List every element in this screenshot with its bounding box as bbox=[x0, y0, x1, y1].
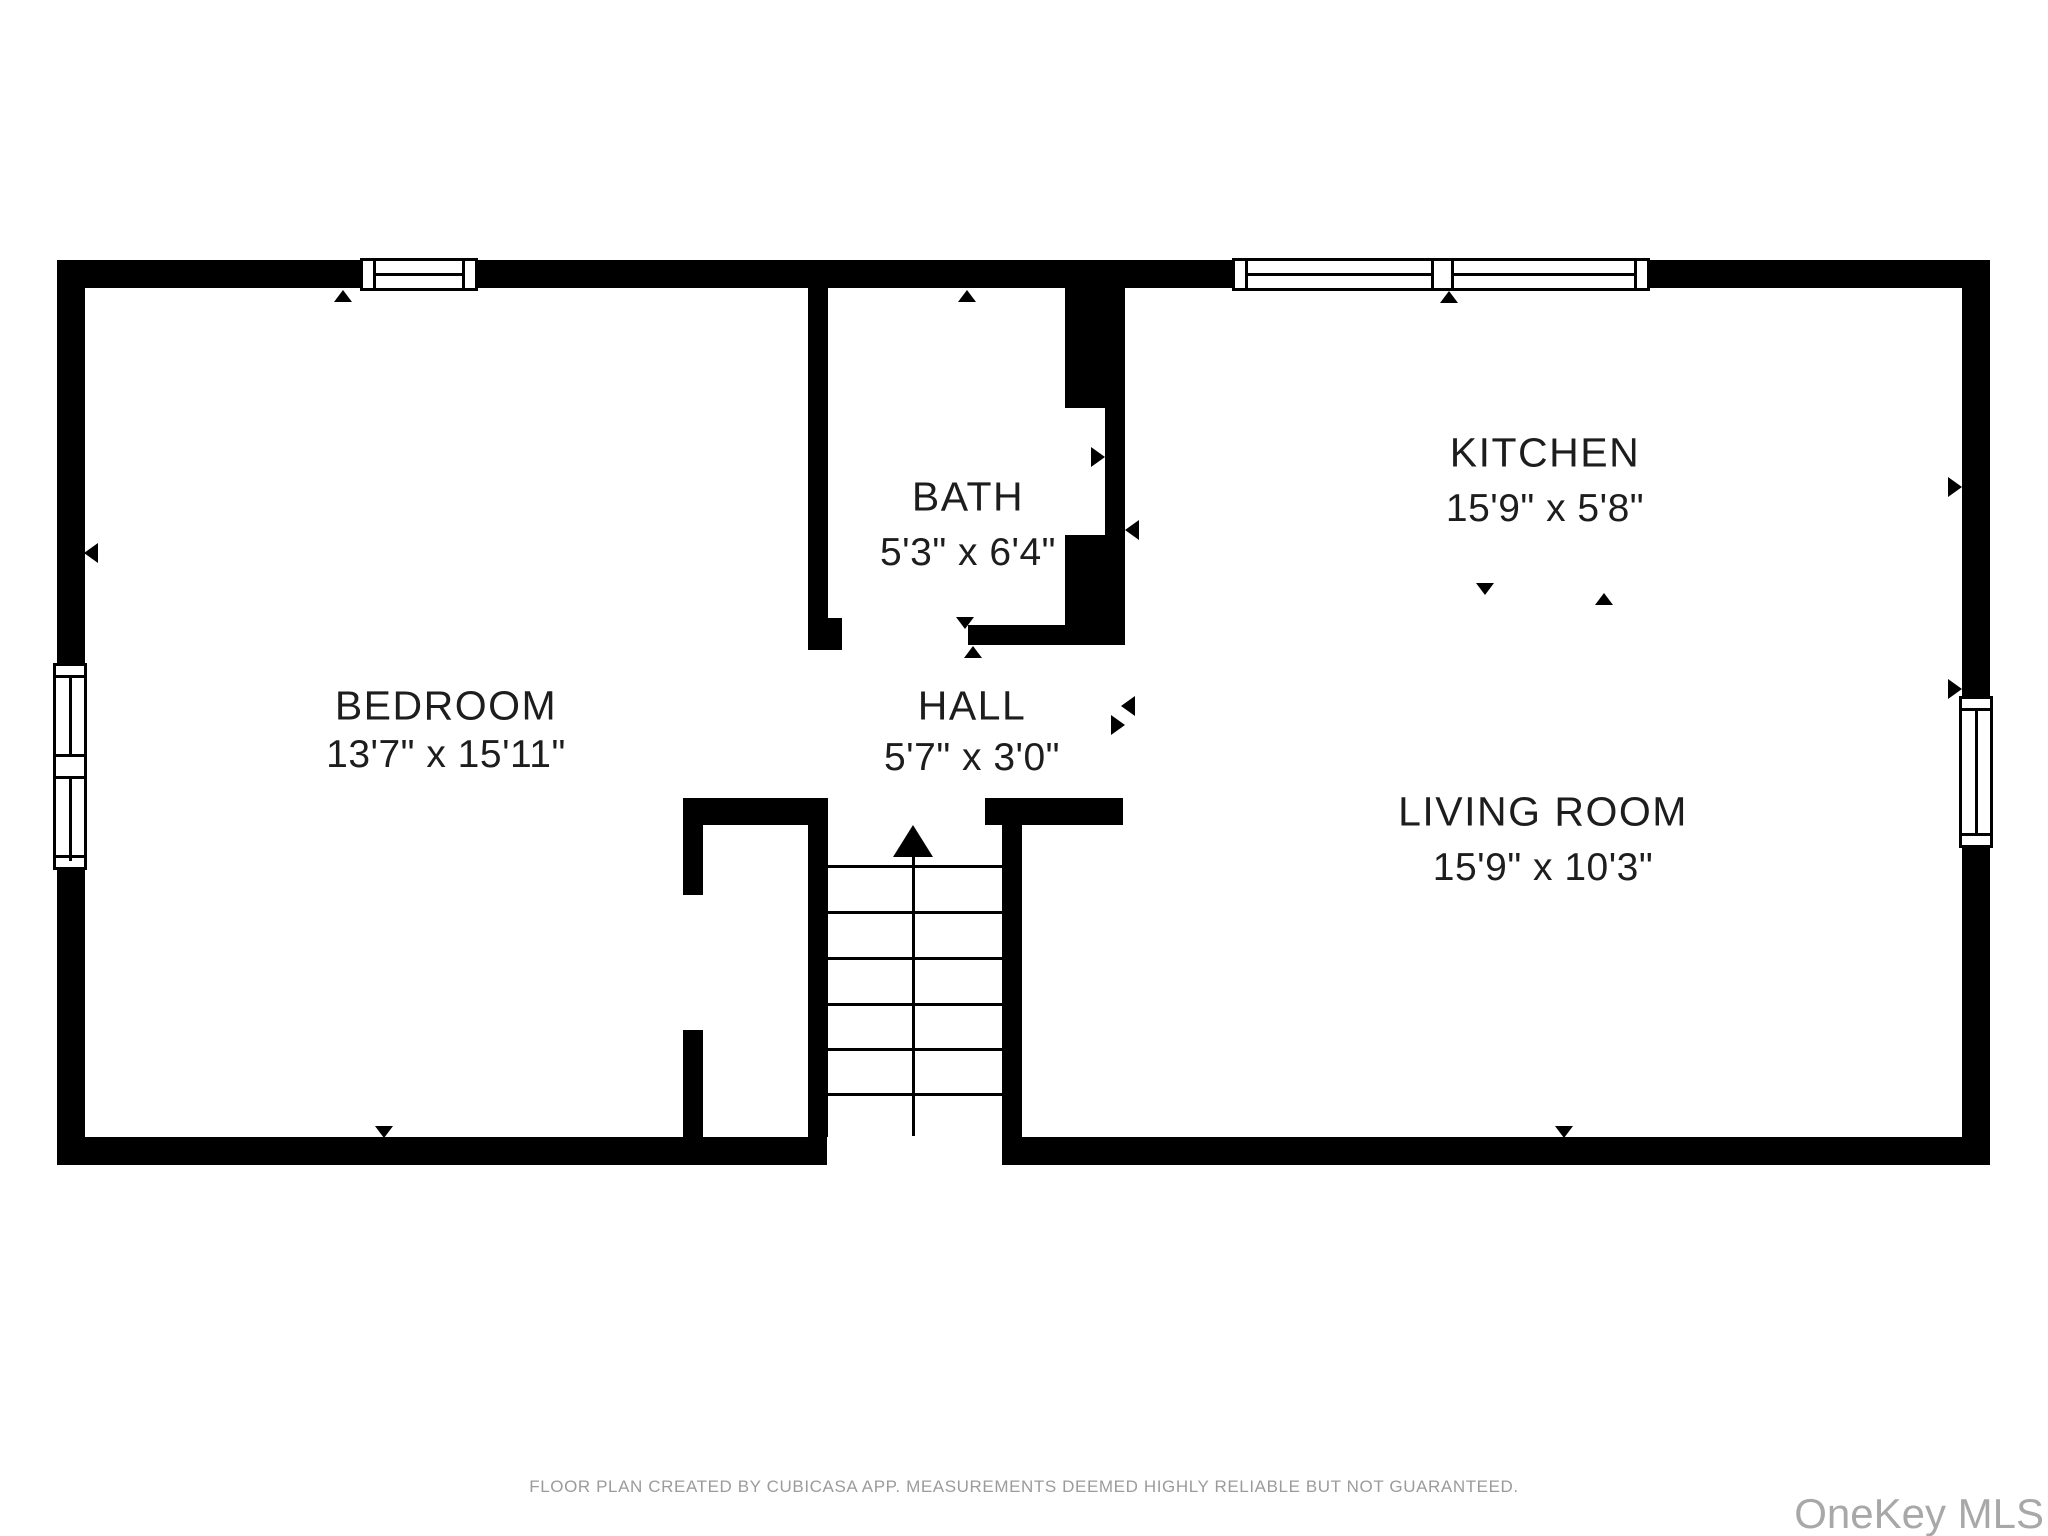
window-glass-line bbox=[1248, 273, 1431, 276]
kitchen-dimensions: 15'9" x 5'8" bbox=[1446, 487, 1644, 531]
bath-label: BATH bbox=[912, 474, 1024, 521]
wall-bath-kitchen-lower bbox=[1065, 535, 1125, 625]
bedroom-left-window bbox=[53, 663, 87, 870]
door-marker-hall-left-icon bbox=[1121, 696, 1135, 716]
stair-tread bbox=[827, 1048, 1002, 1051]
door-marker-hall-right-icon bbox=[1111, 715, 1125, 735]
wall-bath-kitchen-upper bbox=[1065, 288, 1125, 408]
wall-bedroom-notch bbox=[828, 618, 842, 650]
door-marker-kitchen-floor-up-icon bbox=[1595, 593, 1613, 605]
living-room-right-window bbox=[1959, 696, 1993, 848]
bedroom-top-window bbox=[360, 258, 478, 291]
exterior-wall-bottom-left bbox=[57, 1137, 827, 1165]
door-marker-right-wall-upper-icon bbox=[1948, 477, 1962, 497]
wall-stairs-top-right bbox=[985, 798, 1123, 825]
window-frame-line bbox=[1962, 833, 1990, 836]
door-marker-bath-top-icon bbox=[958, 290, 976, 302]
floor-plan-canvas: BEDROOM 13'7" x 15'11" BATH 5'3" x 6'4" … bbox=[0, 0, 2048, 1536]
door-marker-kitchen-wall-icon bbox=[1125, 520, 1139, 540]
wall-stairs-right bbox=[1002, 825, 1022, 1137]
wall-closet-left-upper bbox=[683, 798, 703, 895]
footer-disclaimer: FLOOR PLAN CREATED BY CUBICASA APP. MEAS… bbox=[0, 1477, 2048, 1497]
watermark-text: OneKey MLS bbox=[1794, 1490, 2044, 1536]
door-marker-right-wall-lower-icon bbox=[1948, 679, 1962, 699]
stair-tread bbox=[827, 1003, 1002, 1006]
exterior-wall-bottom-right bbox=[1002, 1137, 1990, 1165]
window-glass-line bbox=[376, 273, 462, 276]
window-glass-line bbox=[1454, 273, 1634, 276]
window-frame-line bbox=[462, 261, 465, 288]
bedroom-dimensions: 13'7" x 15'11" bbox=[326, 733, 566, 777]
exterior-wall-top bbox=[57, 260, 1990, 288]
living-room-label: LIVING ROOM bbox=[1398, 789, 1688, 836]
door-marker-kitchen-floor-down-icon bbox=[1476, 583, 1494, 595]
hall-label: HALL bbox=[918, 683, 1027, 730]
window-glass-line bbox=[69, 678, 72, 754]
wall-bath-kitchen-narrow bbox=[1105, 408, 1125, 535]
staircase bbox=[827, 825, 1002, 1165]
bath-dimensions: 5'3" x 6'4" bbox=[880, 531, 1056, 575]
wall-bedroom-bath-upper bbox=[808, 288, 828, 650]
stair-tread bbox=[827, 957, 1002, 960]
kitchen-top-window bbox=[1232, 258, 1650, 291]
wall-closet-left-lower bbox=[683, 1030, 703, 1137]
wall-bedroom-hall-lower bbox=[808, 798, 828, 1137]
stair-tread bbox=[827, 1093, 1002, 1096]
kitchen-label: KITCHEN bbox=[1450, 430, 1640, 477]
window-glass-line bbox=[1975, 711, 1978, 833]
wall-bath-bottom bbox=[968, 625, 1125, 645]
door-marker-bath-door-up-icon bbox=[964, 646, 982, 658]
door-marker-bath-door-down-icon bbox=[956, 617, 974, 629]
hall-dimensions: 5'7" x 3'0" bbox=[884, 736, 1060, 780]
wall-closet-top bbox=[683, 798, 828, 825]
door-marker-bedroom-top-icon bbox=[334, 290, 352, 302]
door-marker-bedroom-left-icon bbox=[84, 543, 98, 563]
bedroom-label: BEDROOM bbox=[335, 683, 557, 730]
window-glass-line bbox=[69, 779, 72, 861]
door-marker-kitchen-window-icon bbox=[1440, 291, 1458, 303]
stair-tread bbox=[827, 911, 1002, 914]
door-marker-bedroom-bottom-icon bbox=[375, 1126, 393, 1138]
window-frame-line bbox=[1634, 261, 1637, 288]
living-room-dimensions: 15'9" x 10'3" bbox=[1433, 846, 1653, 890]
window-mullion bbox=[1431, 261, 1434, 288]
door-marker-living-bottom-icon bbox=[1555, 1126, 1573, 1138]
stair-tread bbox=[827, 865, 1002, 868]
window-mullion bbox=[56, 754, 84, 757]
door-marker-bath-notch-icon bbox=[1091, 447, 1105, 467]
